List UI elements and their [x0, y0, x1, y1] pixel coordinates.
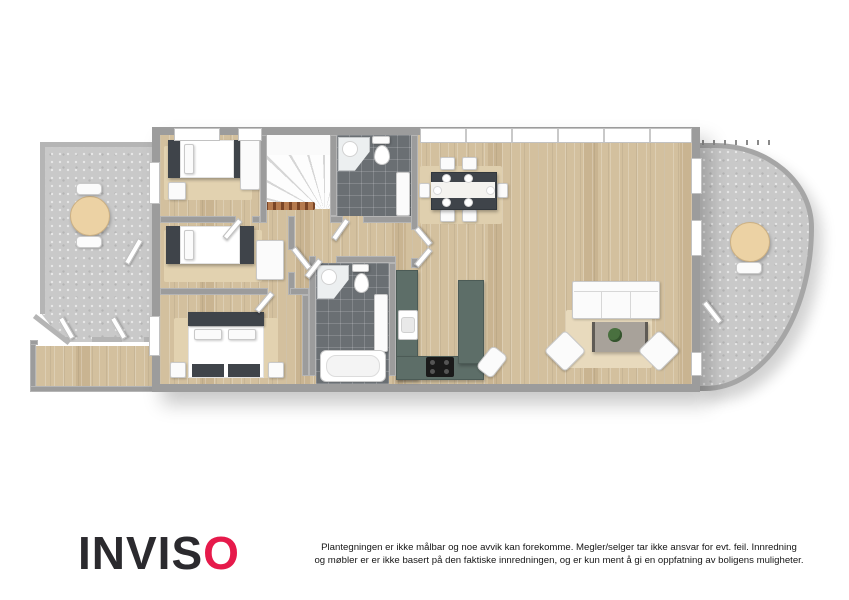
window-stairs-top	[238, 128, 262, 141]
entry-hall-floor	[36, 346, 154, 386]
bed2-pillow	[184, 230, 194, 260]
plate-2	[464, 174, 473, 183]
wall-bedroom3-top-right	[290, 288, 309, 295]
terrace-wall-left	[40, 142, 45, 314]
cooktop-burner-4	[444, 369, 449, 374]
wall-bathroom-main-right	[389, 263, 396, 376]
window-bedroom1-top	[174, 128, 220, 141]
floor-plan	[0, 0, 849, 520]
window-living-right-2	[691, 220, 702, 256]
entry-hall-wall-bottom	[30, 386, 162, 392]
bathroom-main-basin	[321, 269, 337, 285]
bathroom-main-toilet-tank	[352, 264, 369, 272]
window-bedroom1-left	[149, 162, 160, 204]
cooktop-burner-2	[444, 360, 449, 365]
floorplan-page: INVISO Plantegningen er ikke målbar og n…	[0, 0, 849, 600]
logo-text-main: INVIS	[78, 527, 203, 579]
disclaimer-line-1: Plantegningen er ikke målbar og noe avvi…	[278, 542, 840, 555]
sofa-cushion-divider-1	[601, 292, 602, 318]
plate-6	[486, 186, 495, 195]
wall-hall-right-upper	[411, 135, 418, 230]
plate-5	[433, 186, 442, 195]
sofa	[572, 281, 660, 319]
bathroom-small-toilet-tank	[372, 136, 390, 144]
window-living-right-3	[691, 352, 702, 376]
terrace-wall-top	[40, 142, 152, 147]
stairs-landing	[267, 135, 330, 156]
kitchen-counter-right	[458, 280, 484, 364]
bedroom2-dresser	[256, 240, 284, 280]
wall-bedroom2-right-upper	[288, 216, 295, 250]
bedroom1-nightstand	[168, 182, 186, 200]
window-band-living-top	[420, 128, 692, 143]
wall-bathroom-small-left	[330, 135, 337, 216]
balcony-railing-posts	[702, 140, 770, 145]
disclaimer-text: Plantegningen er ikke målbar og noe avvi…	[278, 542, 840, 568]
bathroom-main-tall-cabinet	[374, 294, 388, 352]
wall-bedroom1-bottom-1	[160, 216, 236, 223]
bed1-pillow	[184, 144, 194, 174]
stairs-railing	[265, 202, 315, 210]
wall-bathroom-small-bottom-2	[363, 216, 418, 223]
terrace-wall-bottom-seg2	[92, 337, 122, 342]
cooktop-burner-1	[430, 360, 435, 365]
bed3-pillow-1	[194, 329, 222, 340]
cooktop-burner-3	[430, 369, 435, 374]
wall-bedroom2-bottom	[160, 288, 268, 295]
sofa-cushion-divider-2	[630, 292, 631, 318]
inviso-logo: INVISO	[78, 526, 240, 580]
dining-chair-right	[497, 183, 508, 198]
bedroom3-nightstand-right	[268, 362, 284, 378]
bedroom1-wardrobe	[240, 136, 260, 190]
dining-chair-left	[419, 183, 430, 198]
entry-hall-wall-top-stub	[30, 340, 38, 345]
entry-hall-wall-left	[30, 340, 36, 392]
bathroom-small-basin	[342, 141, 358, 157]
plate-3	[442, 198, 451, 207]
bathtub-inner	[326, 355, 380, 377]
bedroom3-nightstand-left	[170, 362, 186, 378]
balcony-round-table	[730, 222, 770, 262]
terrace-chair-top	[76, 183, 102, 195]
dining-chair-bottom-2	[462, 209, 477, 222]
balcony-chair	[736, 262, 762, 274]
dining-chair-top-1	[440, 157, 455, 170]
logo-letter-o: O	[203, 527, 240, 579]
bathroom-small-toilet-bowl	[374, 145, 390, 165]
dining-chair-top-2	[462, 157, 477, 170]
wall-bedroom3-right	[302, 295, 309, 376]
bathroom-main-toilet-bowl	[354, 273, 369, 293]
plate-1	[442, 174, 451, 183]
sofa-backrest-line	[574, 291, 658, 292]
bathroom-small-cabinet	[396, 172, 410, 216]
bed3-pillow-2	[228, 329, 256, 340]
window-bedroom3-left	[149, 316, 160, 356]
plate-4	[464, 198, 473, 207]
terrace-chair-bottom	[76, 236, 102, 248]
wall-bathroom-main-top	[336, 256, 396, 263]
disclaimer-line-2: og møbler er er ikke basert på den fakti…	[278, 555, 840, 568]
kitchen-sink-bowl	[401, 317, 415, 333]
dining-chair-bottom-1	[440, 209, 455, 222]
terrace-round-table	[70, 196, 110, 236]
wall-bedroom1-right	[260, 135, 267, 223]
window-living-right-1	[691, 158, 702, 194]
bed3-headboard	[188, 312, 264, 326]
stairs	[267, 155, 330, 209]
bed3-foot-bench-2	[228, 364, 260, 377]
wall-bedroom1-bottom-2	[252, 216, 260, 223]
plant	[608, 328, 622, 342]
bed3-foot-bench-1	[192, 364, 224, 377]
